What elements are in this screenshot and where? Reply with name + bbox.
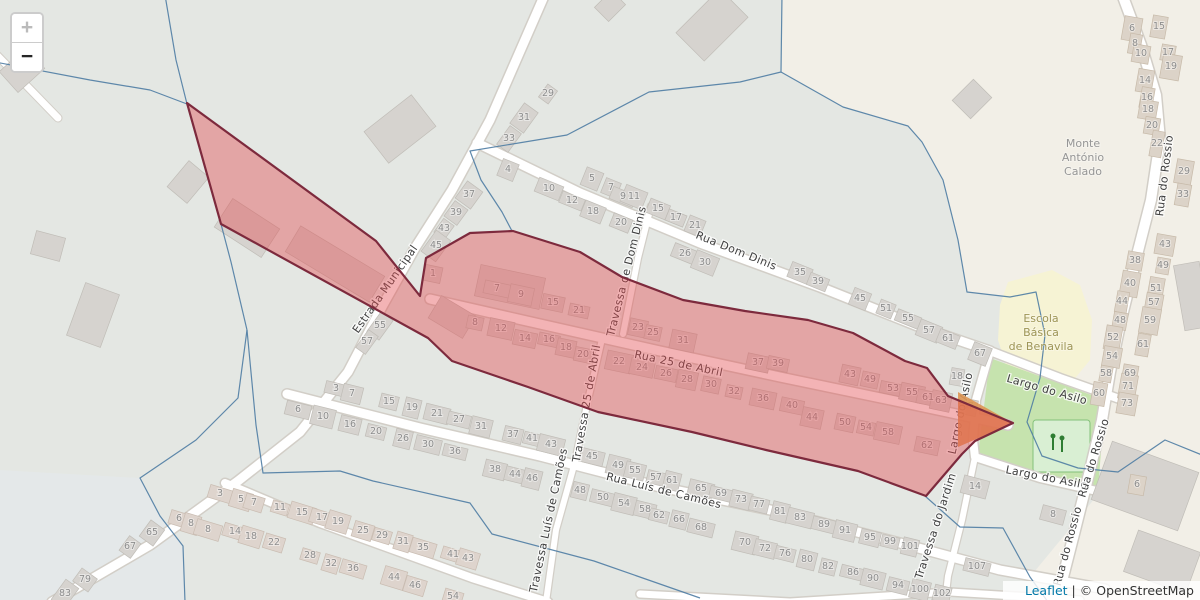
svg-text:45: 45 — [586, 451, 598, 462]
svg-text:10: 10 — [1135, 48, 1147, 59]
svg-text:12: 12 — [566, 195, 578, 206]
svg-text:60: 60 — [1093, 388, 1105, 399]
svg-text:Básica: Básica — [1023, 326, 1059, 339]
svg-text:19: 19 — [332, 516, 344, 527]
svg-text:31: 31 — [518, 112, 530, 123]
svg-text:10: 10 — [317, 411, 329, 422]
svg-text:45: 45 — [854, 293, 866, 304]
svg-text:27: 27 — [453, 414, 465, 425]
svg-text:61: 61 — [1137, 339, 1149, 350]
svg-text:18: 18 — [587, 206, 599, 217]
svg-text:58: 58 — [1100, 368, 1112, 379]
svg-text:68: 68 — [695, 522, 707, 533]
osm-attribution: © OpenStreetMap — [1080, 583, 1194, 598]
svg-text:10: 10 — [543, 183, 555, 194]
svg-text:6: 6 — [1134, 479, 1140, 490]
svg-text:61: 61 — [942, 333, 954, 344]
svg-text:54: 54 — [1106, 351, 1118, 362]
leaflet-link[interactable]: Leaflet — [1025, 583, 1068, 598]
svg-text:49: 49 — [1157, 260, 1169, 271]
svg-text:28: 28 — [304, 550, 316, 561]
svg-text:40: 40 — [1124, 278, 1136, 289]
svg-text:Calado: Calado — [1064, 165, 1102, 178]
svg-text:33: 33 — [503, 133, 515, 144]
svg-text:9: 9 — [620, 191, 626, 202]
svg-text:66: 66 — [673, 514, 685, 525]
svg-text:8: 8 — [188, 518, 194, 529]
svg-text:30: 30 — [422, 439, 434, 450]
svg-text:11: 11 — [274, 502, 286, 513]
svg-text:32: 32 — [325, 558, 337, 569]
svg-text:14: 14 — [229, 526, 241, 537]
svg-text:77: 77 — [753, 499, 765, 510]
map-tiles: 2931333739434555576567798335711151719252… — [0, 0, 1200, 600]
svg-text:de Benavila: de Benavila — [1009, 340, 1074, 353]
svg-text:37: 37 — [507, 429, 519, 440]
svg-text:7: 7 — [251, 497, 257, 508]
svg-text:44: 44 — [388, 572, 400, 583]
svg-text:4: 4 — [505, 164, 511, 175]
svg-text:8: 8 — [205, 524, 211, 535]
svg-text:5: 5 — [238, 494, 244, 505]
svg-text:94: 94 — [892, 580, 904, 591]
svg-text:35: 35 — [794, 267, 806, 278]
attribution-bar: Leaflet | © OpenStreetMap — [1003, 581, 1200, 600]
svg-text:43: 43 — [1159, 239, 1171, 250]
svg-text:16: 16 — [344, 419, 356, 430]
svg-text:33: 33 — [1177, 189, 1189, 200]
svg-text:36: 36 — [449, 446, 461, 457]
svg-text:15: 15 — [1153, 21, 1165, 32]
svg-text:22: 22 — [268, 537, 280, 548]
svg-text:72: 72 — [759, 543, 771, 554]
svg-text:António: António — [1062, 151, 1105, 164]
svg-text:51: 51 — [880, 303, 892, 314]
svg-text:76: 76 — [779, 548, 791, 559]
leaflet-map[interactable]: 2931333739434555576567798335711151719252… — [0, 0, 1200, 600]
svg-text:99: 99 — [884, 536, 896, 547]
svg-text:43: 43 — [438, 223, 450, 234]
svg-text:20: 20 — [370, 426, 382, 437]
svg-text:20: 20 — [1146, 120, 1158, 131]
svg-text:15: 15 — [296, 507, 308, 518]
svg-text:73: 73 — [1121, 398, 1133, 409]
svg-text:26: 26 — [397, 433, 409, 444]
svg-text:38: 38 — [1129, 255, 1141, 266]
svg-text:21: 21 — [431, 408, 443, 419]
svg-text:Monte: Monte — [1066, 137, 1101, 150]
svg-text:3: 3 — [217, 488, 223, 499]
svg-text:65: 65 — [146, 527, 158, 538]
svg-text:82: 82 — [822, 561, 834, 572]
svg-text:79: 79 — [79, 574, 91, 585]
svg-text:67: 67 — [974, 348, 986, 359]
svg-text:55: 55 — [629, 465, 641, 476]
svg-text:26: 26 — [679, 248, 691, 259]
svg-text:6: 6 — [176, 513, 182, 524]
svg-text:7: 7 — [349, 388, 355, 399]
svg-text:17: 17 — [670, 212, 682, 223]
svg-text:80: 80 — [801, 554, 813, 565]
svg-text:Escola: Escola — [1023, 312, 1058, 325]
svg-text:71: 71 — [1122, 381, 1134, 392]
svg-text:52: 52 — [1107, 332, 1119, 343]
svg-text:35: 35 — [417, 542, 429, 553]
svg-text:57: 57 — [361, 336, 373, 347]
svg-text:31: 31 — [475, 421, 487, 432]
svg-text:31: 31 — [397, 536, 409, 547]
svg-text:102: 102 — [933, 588, 951, 599]
svg-text:69: 69 — [1124, 368, 1136, 379]
svg-text:89: 89 — [818, 519, 830, 530]
svg-text:18: 18 — [1142, 104, 1154, 115]
svg-text:5: 5 — [589, 173, 595, 184]
svg-text:62: 62 — [653, 510, 665, 521]
svg-text:43: 43 — [462, 553, 474, 564]
svg-text:107: 107 — [968, 561, 986, 572]
zoom-in-button[interactable]: + — [12, 14, 42, 42]
svg-text:29: 29 — [376, 530, 388, 541]
svg-text:41: 41 — [526, 433, 538, 444]
svg-text:101: 101 — [901, 541, 919, 552]
svg-text:83: 83 — [59, 588, 71, 599]
svg-text:38: 38 — [489, 464, 501, 475]
svg-text:50: 50 — [597, 492, 609, 503]
svg-text:30: 30 — [699, 257, 711, 268]
svg-text:86: 86 — [847, 567, 859, 578]
svg-text:18: 18 — [245, 531, 257, 542]
svg-text:17: 17 — [316, 512, 328, 523]
zoom-out-button[interactable]: − — [12, 43, 42, 71]
svg-text:54: 54 — [618, 498, 630, 509]
svg-text:59: 59 — [1144, 315, 1156, 326]
svg-text:14: 14 — [1139, 75, 1151, 86]
svg-text:19: 19 — [406, 402, 418, 413]
svg-text:15: 15 — [652, 203, 664, 214]
svg-text:19: 19 — [1165, 61, 1177, 72]
svg-text:43: 43 — [545, 439, 557, 450]
ukraine-flag-icon — [1008, 586, 1021, 595]
svg-text:25: 25 — [357, 525, 369, 536]
svg-text:51: 51 — [1150, 283, 1162, 294]
svg-text:55: 55 — [374, 320, 386, 331]
svg-text:14: 14 — [969, 481, 981, 492]
svg-text:91: 91 — [839, 525, 851, 536]
svg-text:46: 46 — [526, 473, 538, 484]
svg-text:41: 41 — [447, 549, 459, 560]
svg-text:81: 81 — [774, 506, 786, 517]
svg-text:54: 54 — [447, 591, 459, 600]
svg-text:49: 49 — [612, 460, 624, 471]
svg-text:20: 20 — [615, 217, 627, 228]
svg-text:58: 58 — [639, 504, 651, 515]
svg-text:46: 46 — [409, 580, 421, 591]
svg-text:17: 17 — [1162, 47, 1174, 58]
svg-text:8: 8 — [1050, 509, 1056, 520]
svg-text:70: 70 — [739, 537, 751, 548]
svg-text:36: 36 — [347, 563, 359, 574]
svg-text:90: 90 — [867, 573, 879, 584]
svg-text:37: 37 — [463, 189, 475, 200]
svg-text:3: 3 — [333, 383, 339, 394]
svg-text:57: 57 — [1148, 297, 1160, 308]
svg-text:44: 44 — [1116, 296, 1128, 307]
svg-text:48: 48 — [1114, 315, 1126, 326]
svg-text:6: 6 — [295, 404, 301, 415]
svg-text:95: 95 — [864, 532, 876, 543]
svg-text:11: 11 — [628, 191, 640, 202]
svg-text:48: 48 — [574, 485, 586, 496]
svg-text:29: 29 — [1178, 166, 1190, 177]
svg-text:67: 67 — [124, 541, 136, 552]
svg-text:55: 55 — [902, 313, 914, 324]
attribution-separator: | — [1072, 583, 1076, 598]
svg-text:100: 100 — [911, 584, 929, 595]
svg-text:39: 39 — [450, 207, 462, 218]
svg-text:44: 44 — [509, 469, 521, 480]
svg-text:29: 29 — [542, 88, 554, 99]
svg-text:15: 15 — [383, 396, 395, 407]
svg-text:39: 39 — [812, 276, 824, 287]
svg-text:57: 57 — [923, 325, 935, 336]
svg-text:83: 83 — [794, 512, 806, 523]
svg-text:7: 7 — [608, 182, 614, 193]
svg-text:6: 6 — [1129, 23, 1135, 34]
svg-text:73: 73 — [735, 494, 747, 505]
svg-text:16: 16 — [1141, 92, 1153, 103]
zoom-control: + − — [10, 12, 44, 73]
